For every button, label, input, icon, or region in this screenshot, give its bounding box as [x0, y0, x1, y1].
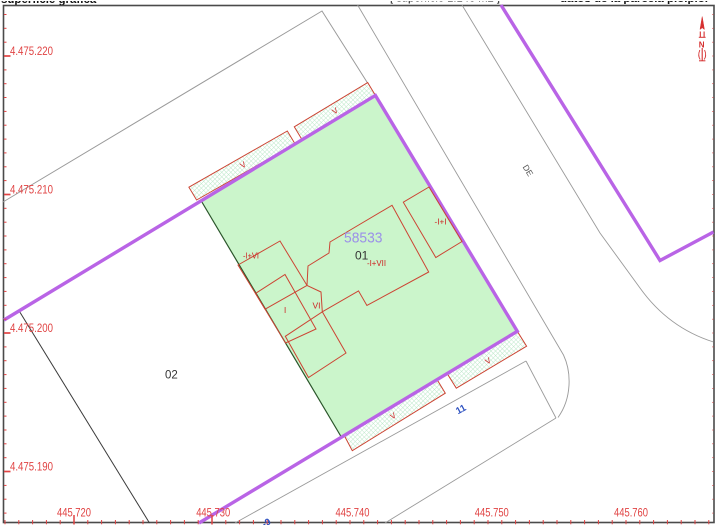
svg-text:-I+VII: -I+VII [367, 259, 386, 268]
svg-text:-I+I: -I+I [435, 218, 447, 227]
svg-text:4.475.190: 4.475.190 [10, 462, 53, 474]
svg-text:-I+VI: -I+VI [243, 252, 259, 261]
svg-text:445.740: 445.740 [336, 508, 370, 520]
svg-text:VI: VI [313, 302, 321, 311]
svg-text:58533: 58533 [344, 231, 383, 247]
svg-text:4.475.200: 4.475.200 [10, 323, 53, 335]
svg-text:445.730: 445.730 [196, 508, 230, 520]
svg-text:I: I [284, 306, 286, 315]
svg-text:445.760: 445.760 [614, 508, 648, 520]
svg-text:4.475.220: 4.475.220 [10, 46, 53, 58]
svg-text:02: 02 [165, 370, 178, 382]
svg-text:445.750: 445.750 [475, 508, 509, 520]
svg-text:4.475.210: 4.475.210 [10, 185, 53, 197]
